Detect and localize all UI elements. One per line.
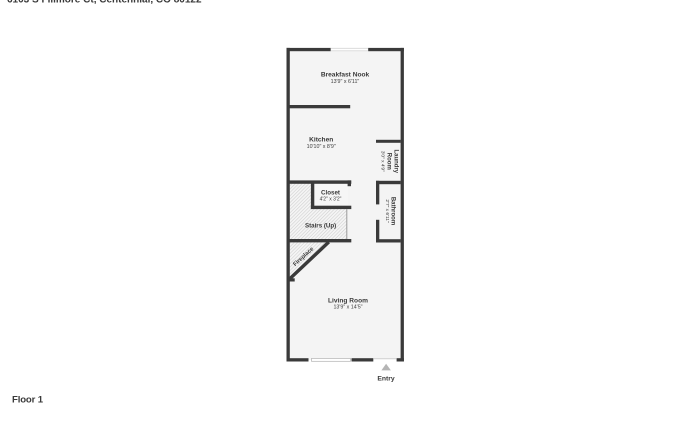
- svg-text:10'10" x 8'9": 10'10" x 8'9": [307, 144, 336, 150]
- svg-text:4'2" x 3'2": 4'2" x 3'2": [320, 196, 342, 202]
- svg-text:Closet: Closet: [321, 189, 340, 196]
- svg-text:13'9" x 6'11": 13'9" x 6'11": [331, 79, 360, 85]
- svg-text:2'7" x 6'11": 2'7" x 6'11": [384, 199, 390, 223]
- svg-text:Floor 1: Floor 1: [12, 395, 44, 406]
- svg-text:6103 S Fillmore Ct, Centennial: 6103 S Fillmore Ct, Centennial, CO 80122: [7, 0, 202, 5]
- svg-text:Bathroom: Bathroom: [390, 197, 396, 225]
- svg-text:Breakfast Nook: Breakfast Nook: [321, 72, 370, 79]
- svg-text:3'0" x 4'9": 3'0" x 4'9": [379, 151, 385, 172]
- svg-text:Entry: Entry: [377, 376, 395, 383]
- svg-text:Room: Room: [386, 153, 392, 170]
- svg-text:Living Room: Living Room: [328, 298, 368, 305]
- svg-text:Laundry: Laundry: [393, 149, 399, 173]
- svg-text:Stairs (Up): Stairs (Up): [305, 222, 336, 229]
- svg-text:Kitchen: Kitchen: [309, 136, 333, 143]
- svg-text:13'9" x 14'5": 13'9" x 14'5": [333, 305, 362, 311]
